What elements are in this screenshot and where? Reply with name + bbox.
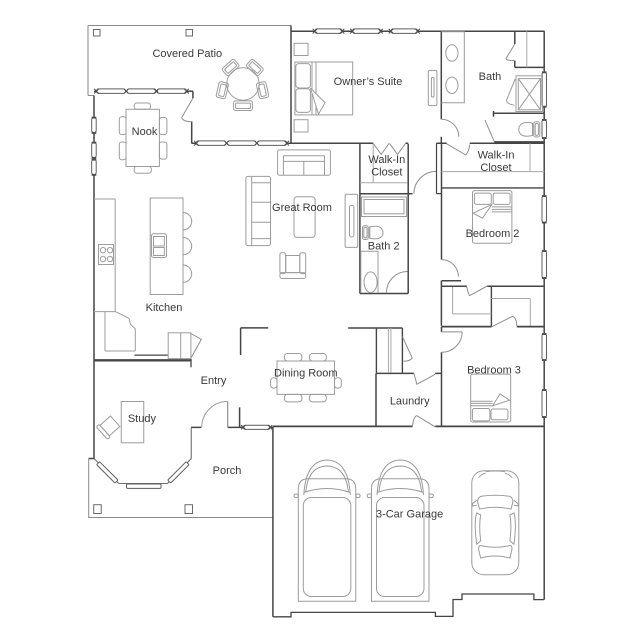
svg-text:3-Car Garage: 3-Car Garage (376, 508, 443, 520)
svg-text:Porch: Porch (213, 465, 242, 477)
svg-text:Owner’s Suite: Owner’s Suite (334, 76, 403, 88)
svg-text:Covered Patio: Covered Patio (152, 48, 222, 60)
svg-text:Closet: Closet (480, 162, 511, 174)
svg-text:Great Room: Great Room (272, 202, 332, 214)
svg-text:Nook: Nook (132, 126, 158, 138)
svg-text:Entry: Entry (201, 375, 227, 387)
svg-text:Dining Room: Dining Room (274, 368, 338, 380)
svg-text:Bath 2: Bath 2 (368, 240, 400, 252)
svg-text:Walk-In: Walk-In (478, 150, 515, 162)
svg-text:Bedroom 2: Bedroom 2 (466, 228, 520, 240)
svg-text:Bedroom 3: Bedroom 3 (467, 364, 521, 376)
svg-text:Study: Study (128, 413, 157, 425)
svg-text:Closet: Closet (371, 166, 402, 178)
svg-text:Bath: Bath (479, 71, 502, 83)
svg-text:Kitchen: Kitchen (146, 302, 183, 314)
svg-text:Laundry: Laundry (390, 395, 430, 407)
svg-text:Walk-In: Walk-In (368, 154, 405, 166)
